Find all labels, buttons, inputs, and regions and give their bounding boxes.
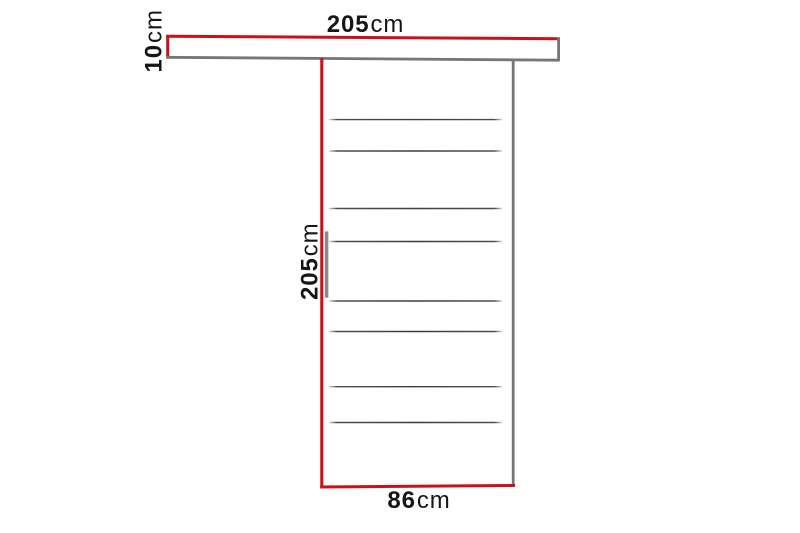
svg-text:10cm: 10cm — [141, 9, 168, 72]
svg-text:205cm: 205cm — [297, 222, 324, 300]
svg-text:86cm: 86cm — [387, 487, 450, 514]
svg-text:205cm: 205cm — [327, 11, 405, 38]
